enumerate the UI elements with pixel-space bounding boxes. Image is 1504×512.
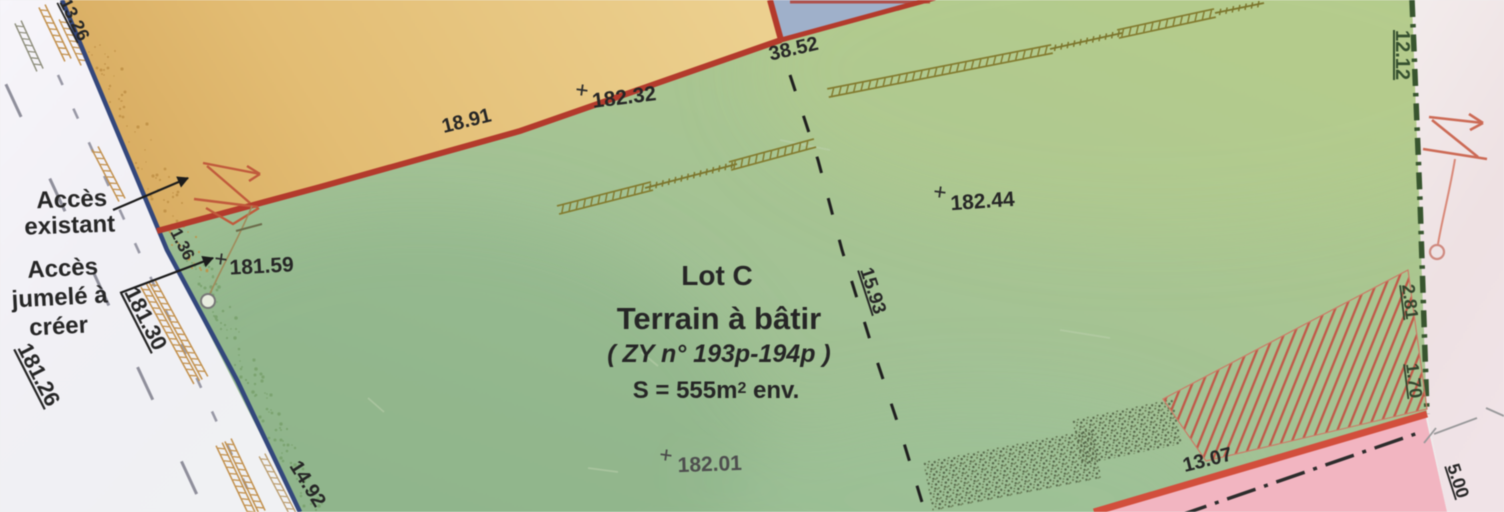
svg-text:Accès: Accès <box>27 253 99 284</box>
svg-text:Terrain à bâtir: Terrain à bâtir <box>617 301 821 336</box>
svg-text:182.01: 182.01 <box>677 452 742 477</box>
svg-text:S = 555m2 env.: S = 555m2 env. <box>633 377 800 404</box>
svg-text:182.44: 182.44 <box>950 188 1016 215</box>
svg-text:Lot C: Lot C <box>681 260 753 291</box>
svg-text:181.59: 181.59 <box>229 253 294 279</box>
svg-text:( ZY n° 193p-194p ): ( ZY n° 193p-194p ) <box>607 340 831 368</box>
svg-text:existant: existant <box>24 210 116 240</box>
svg-text:2.81: 2.81 <box>1398 283 1422 320</box>
svg-text:créer: créer <box>29 311 89 341</box>
svg-text:jumelé à: jumelé à <box>10 281 109 313</box>
svg-text:Accès: Accès <box>36 185 108 214</box>
svg-text:12.12: 12.12 <box>1391 30 1413 80</box>
svg-text:1.70: 1.70 <box>1402 362 1426 399</box>
